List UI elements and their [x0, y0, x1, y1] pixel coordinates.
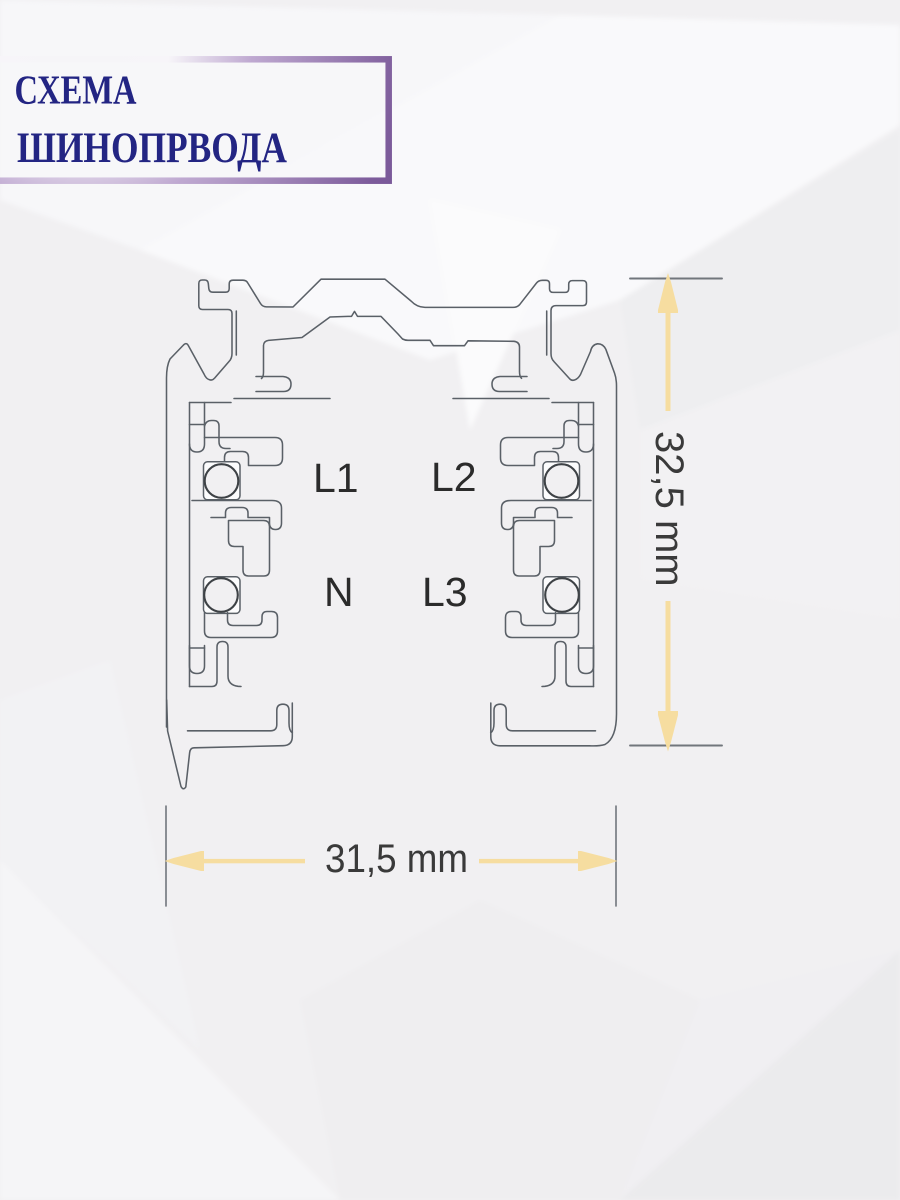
svg-text:L2: L2 — [431, 454, 477, 500]
svg-text:N: N — [324, 569, 354, 615]
svg-text:L1: L1 — [313, 455, 359, 501]
svg-text:32,5 mm: 32,5 mm — [647, 431, 691, 587]
svg-text:L3: L3 — [422, 569, 468, 615]
svg-text:31,5 mm: 31,5 mm — [325, 837, 468, 881]
